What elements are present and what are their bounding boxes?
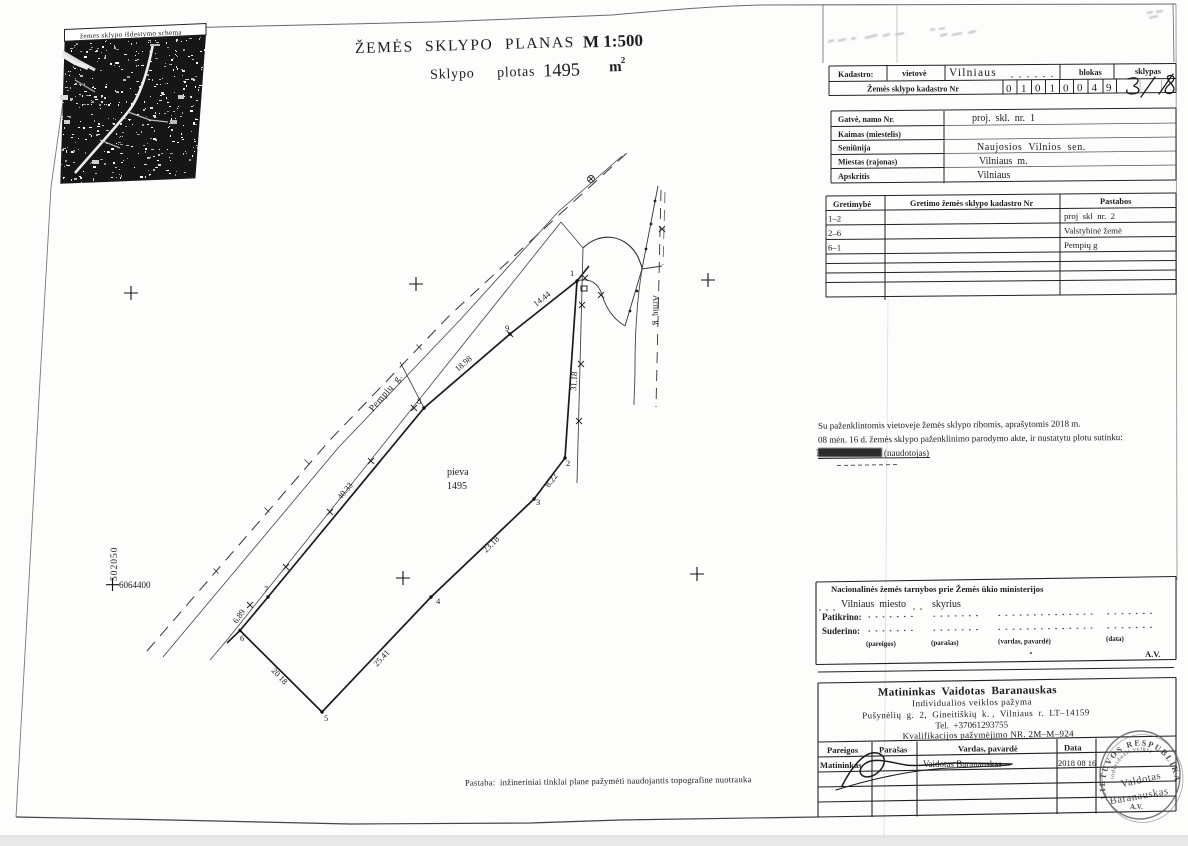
svg-text:Pempių g: Pempių g <box>1064 240 1098 250</box>
svg-text:1: 1 <box>1021 83 1027 95</box>
svg-text:(naudotojas): (naudotojas) <box>884 448 929 458</box>
svg-text:0: 0 <box>1035 83 1041 95</box>
svg-text:25.41: 25.41 <box>371 648 391 669</box>
svg-text:Vilniaus miesto: Vilniaus miesto <box>841 599 906 610</box>
svg-text:8.22: 8.22 <box>543 471 560 489</box>
svg-text:20 18: 20 18 <box>270 666 290 687</box>
svg-text:vietovė: vietovė <box>902 69 927 78</box>
svg-text:0: 0 <box>1006 83 1012 95</box>
svg-text:14.44: 14.44 <box>531 288 553 308</box>
svg-text:ŽEMĖS: ŽEMĖS <box>355 38 414 57</box>
svg-text:08 mėn. 16 d. žemės sklypo paž: 08 mėn. 16 d. žemės sklypo paženklinimo … <box>818 432 1123 445</box>
svg-text:6.89: 6.89 <box>230 607 247 625</box>
svg-text:A.V.: A.V. <box>1145 649 1160 659</box>
svg-text:Vilniaus: Vilniaus <box>949 67 997 79</box>
svg-text:blokas: blokas <box>1079 68 1102 77</box>
svg-text:31.18: 31.18 <box>568 371 579 391</box>
svg-text:Pempių g.: Pempių g. <box>368 372 405 414</box>
svg-text:6–1: 6–1 <box>828 243 841 253</box>
svg-text:Sklypo: Sklypo <box>430 66 475 82</box>
svg-text:Parašas: Parašas <box>879 745 908 755</box>
svg-text:proj. skl. nr. 1: proj. skl. nr. 1 <box>972 113 1035 124</box>
svg-text:Individualios veiklos pažyma: Individualios veiklos pažyma <box>912 697 1032 709</box>
svg-text:18.98: 18.98 <box>453 353 474 373</box>
svg-text:M 1:500: M 1:500 <box>583 31 643 52</box>
svg-text:Žemės sklypo kadastro Nr: Žemės sklypo kadastro Nr <box>867 84 959 94</box>
svg-text:1495: 1495 <box>543 60 581 81</box>
svg-text:PLANAS: PLANAS <box>505 34 575 53</box>
svg-text:2–6: 2–6 <box>828 228 842 238</box>
svg-text:23.18: 23.18 <box>480 534 501 554</box>
svg-text:Nacionalinės žemės tarnybos pr: Nacionalinės žemės tarnybos prie Žemės ū… <box>831 584 1044 594</box>
svg-text:(data): (data) <box>1106 635 1125 643</box>
svg-text:Naujosios Vilnios sen.: Naujosios Vilnios sen. <box>977 142 1086 153</box>
svg-text:sklypas: sklypas <box>1135 67 1161 76</box>
svg-text:proj skl nr. 2: proj skl nr. 2 <box>1064 211 1115 221</box>
svg-text:502050: 502050 <box>110 547 120 582</box>
svg-text:Seniūnija: Seniūnija <box>838 144 870 153</box>
svg-text:4: 4 <box>1092 82 1098 94</box>
svg-text:Kadastro:: Kadastro: <box>838 70 873 79</box>
svg-text:9: 9 <box>505 323 509 333</box>
svg-text:2018 08 16: 2018 08 16 <box>1058 758 1096 768</box>
svg-text:SKLYPO: SKLYPO <box>425 36 494 55</box>
svg-text:Data: Data <box>1064 743 1082 753</box>
svg-text:(parašas): (parašas) <box>931 639 959 647</box>
svg-text:Pušynėlių g. 2, Gineitiškių: Pušynėlių g. 2, Gineitiškių k. , Vilniau… <box>862 707 1090 720</box>
svg-text:1–2: 1–2 <box>828 214 841 224</box>
svg-text:1: 1 <box>1050 83 1056 95</box>
svg-text:Apskritis: Apskritis <box>838 172 870 181</box>
svg-text:Miestas (rajonas): Miestas (rajonas) <box>838 158 898 167</box>
svg-text:Vilniaus m.: Vilniaus m. <box>979 156 1028 167</box>
svg-text:Gatvė, namo Nr.: Gatvė, namo Nr. <box>838 115 894 124</box>
svg-text:pieva: pieva <box>447 467 469 478</box>
svg-text:plotas: plotas <box>497 65 536 81</box>
svg-text:Gretimo žemės sklypo kadastro: Gretimo žemės sklypo kadastro Nr <box>910 199 1034 208</box>
svg-text:Vilniaus: Vilniaus <box>977 170 1010 181</box>
svg-text:8: 8 <box>417 396 421 406</box>
svg-text:6: 6 <box>240 633 244 643</box>
svg-text:Vardas, pavardė: Vardas, pavardė <box>958 744 1018 754</box>
svg-text:Valstybinė žemė: Valstybinė žemė <box>1064 226 1122 236</box>
svg-text:Pastabos: Pastabos <box>1100 197 1132 206</box>
svg-text:1495: 1495 <box>447 481 467 492</box>
svg-text:2: 2 <box>566 458 570 468</box>
svg-text:Su paženklintomis vietoveje že: Su paženklintomis vietoveje žemės sklypo… <box>818 418 1081 430</box>
svg-text:0: 0 <box>1063 82 1069 94</box>
svg-text:9: 9 <box>1106 82 1112 94</box>
svg-text:A.V.: A.V. <box>1130 803 1143 811</box>
svg-text:(vardas, pavardė): (vardas, pavardė) <box>998 638 1052 646</box>
svg-text:2: 2 <box>621 55 626 65</box>
svg-text:1: 1 <box>570 268 574 278</box>
svg-text:6064400: 6064400 <box>119 580 151 590</box>
svg-text:Kaimas (miestelis): Kaimas (miestelis) <box>838 130 901 139</box>
svg-text:?: ? <box>816 448 820 458</box>
svg-text:5: 5 <box>324 713 328 723</box>
svg-text:skyrius: skyrius <box>932 599 961 610</box>
svg-text:Pastaba: inžineriniai tinklai: Pastaba: inžineriniai tinklai plane pažy… <box>465 774 752 787</box>
svg-text:Arnių g: Arnių g <box>651 295 662 326</box>
svg-text:Pareigos: Pareigos <box>827 745 859 755</box>
svg-text:Suderino:: Suderino: <box>822 626 860 636</box>
svg-text:7: 7 <box>264 584 268 594</box>
svg-text:Kvalifikacijos pažymėjimo NR.: Kvalifikacijos pažymėjimo NR. 2M–M–924 <box>902 728 1074 741</box>
svg-text:(pareigos): (pareigos) <box>866 640 896 648</box>
svg-text:4: 4 <box>436 596 441 606</box>
svg-text:3: 3 <box>536 497 540 507</box>
svg-text:0: 0 <box>1077 82 1083 94</box>
svg-text:Gretimybė: Gretimybė <box>833 200 871 209</box>
svg-text:Patikrino:: Patikrino: <box>822 612 862 622</box>
